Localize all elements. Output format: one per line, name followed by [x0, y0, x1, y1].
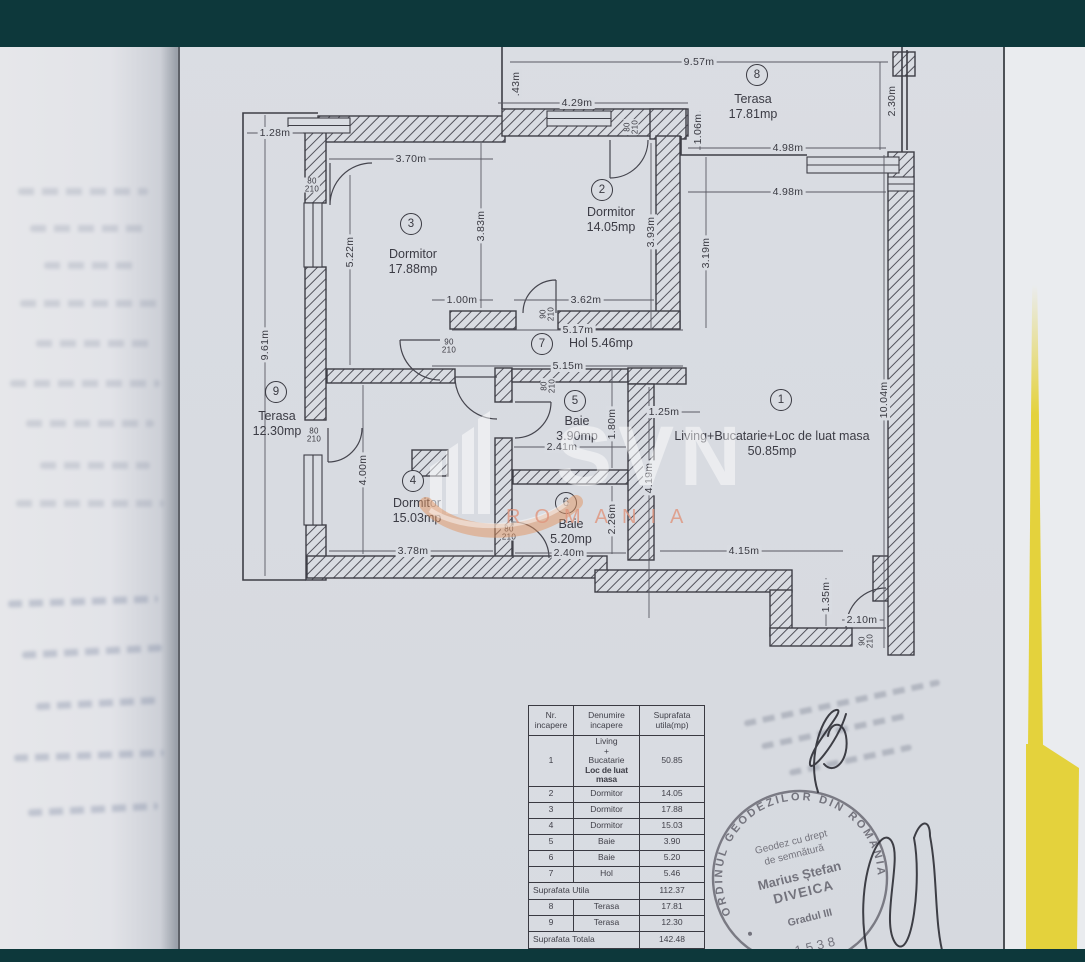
dimension-label: .43m	[510, 70, 522, 99]
name-line: Baie	[598, 837, 615, 847]
room-area: 12.30mp	[232, 424, 322, 439]
room-name: Terasa	[708, 92, 798, 107]
room-number-circle: 3	[400, 213, 422, 235]
stamp-grade: Gradul III	[786, 906, 833, 929]
dimension-label: 9.61m	[259, 328, 271, 363]
room-name: Baie	[542, 414, 612, 429]
room-name: Living+Bucatarie+Loc de luat masa	[647, 429, 897, 444]
room-area: 3.90mp	[542, 429, 612, 444]
cell-name: Dormitor	[573, 787, 639, 802]
cell-name: Terasa	[573, 900, 639, 915]
dimension-label: 3.19m	[700, 236, 712, 271]
cell-nr: 5	[529, 835, 573, 850]
room-area: 50.85mp	[647, 444, 897, 459]
dimension-label: 10.04m	[878, 380, 890, 421]
door-size-line: 210	[866, 634, 874, 648]
door-size-label: 80210	[541, 378, 556, 394]
cell-nr: 9	[529, 916, 573, 931]
dimension-label: 4.19m	[643, 461, 655, 496]
room-number-circle: 5	[564, 390, 586, 412]
area-table: Nr. incapereDenumire incapereSuprafata u…	[528, 705, 705, 959]
door-size-label: 80210	[624, 119, 639, 135]
table-row: 5Baie3.90	[529, 835, 704, 851]
cell-nr: 8	[529, 900, 573, 915]
cell-name: Dormitor	[573, 803, 639, 818]
dimension-label: 1.06m	[692, 112, 704, 147]
name-line: Dormitor	[590, 789, 623, 799]
table-header-row: Nr. incapereDenumire incapereSuprafata u…	[529, 706, 704, 736]
table-header-cell: Nr. incapere	[529, 706, 573, 735]
total-label: Suprafata Totala	[529, 932, 639, 948]
room-label: Hol 5.46mp	[546, 336, 656, 351]
dimension-label: 4.98m	[771, 186, 806, 198]
door-size-line: 210	[547, 307, 555, 321]
cell-nr: 2	[529, 787, 573, 802]
dimension-label: 9.57m	[682, 56, 717, 68]
cell-name: Dormitor	[573, 819, 639, 834]
table-total-row: Suprafata Totala142.48	[529, 932, 704, 949]
cell-name: Living+BucatarieLoc de luat masa	[573, 736, 639, 786]
name-line: Baie	[598, 853, 615, 863]
dimension-label: 2.10m	[845, 614, 880, 626]
dimension-label: 4.29m	[560, 97, 595, 109]
room-number-circle: 4	[402, 470, 424, 492]
room-label: Terasa17.81mp	[708, 92, 798, 121]
room-number-circle: 1	[770, 389, 792, 411]
dimension-label: 1.00m	[445, 294, 480, 306]
letterbox-bar-top	[0, 0, 1085, 47]
door-size-label: 90210	[441, 339, 457, 354]
room-number-circle: 6	[555, 492, 577, 514]
round-stamp: ORDINUL GEODEZILOR DIN ROMÂNIA Geodez cu…	[690, 768, 910, 962]
room-name: Dormitor	[367, 496, 467, 511]
cell-nr: 7	[529, 867, 573, 882]
dimension-label: 5.22m	[344, 235, 356, 270]
cell-name: Baie	[573, 835, 639, 850]
dimension-label: 4.98m	[771, 142, 806, 154]
dimension-label: 1.35m	[820, 580, 832, 615]
dimension-label: 3.83m	[475, 209, 487, 244]
room-label: Dormitor14.05mp	[566, 205, 656, 234]
room-name: Dormitor	[368, 247, 458, 262]
name-line: Terasa	[594, 918, 620, 928]
name-line: Dormitor	[590, 805, 623, 815]
table-row: 7Hol5.46	[529, 867, 704, 883]
name-line: Loc de luat masa	[576, 766, 637, 785]
table-header-cell: Denumire incapere	[573, 706, 639, 735]
room-label: Baie3.90mp	[542, 414, 612, 443]
table-row: 9Terasa12.30	[529, 916, 704, 932]
room-area: 15.03mp	[367, 511, 467, 526]
room-label: Living+Bucatarie+Loc de luat masa50.85mp	[647, 429, 897, 458]
table-row: 2Dormitor14.05	[529, 787, 704, 803]
name-line: Dormitor	[590, 821, 623, 831]
yellow-folder-edge	[1026, 744, 1079, 962]
dimension-label: 3.78m	[396, 545, 431, 557]
room-label: Baie5.20mp	[536, 517, 606, 546]
door-size-label: 80210	[501, 526, 517, 541]
room-name: Dormitor	[566, 205, 656, 220]
dimension-label: 4.00m	[357, 453, 369, 488]
dimension-label: 2.30m	[886, 84, 898, 119]
cell-nr: 3	[529, 803, 573, 818]
dimension-label: 2.40m	[552, 547, 587, 559]
door-size-line: 210	[631, 120, 639, 134]
door-size-label: 80210	[304, 178, 320, 193]
door-size-label: 90210	[540, 306, 555, 322]
cell-name: Terasa	[573, 916, 639, 931]
table-row: 3Dormitor17.88	[529, 803, 704, 819]
table-row: 8Terasa17.81	[529, 900, 704, 916]
door-size-line: 210	[502, 533, 516, 541]
dimension-label: 3.62m	[569, 294, 604, 306]
room-label: Dormitor17.88mp	[368, 247, 458, 276]
room-number-circle: 9	[265, 381, 287, 403]
dimension-label: 2.26m	[606, 502, 618, 537]
dimension-label: 1.28m	[258, 127, 293, 139]
room-name: Terasa	[232, 409, 322, 424]
dimension-label: 1.25m	[647, 406, 682, 418]
cell-name: Baie	[573, 851, 639, 866]
cell-name: Hol	[573, 867, 639, 882]
door-size-label: 90210	[859, 633, 874, 649]
table-header-cell: Suprafata utila(mp)	[639, 706, 704, 735]
room-area: 5.20mp	[536, 532, 606, 547]
table-row: 6Baie5.20	[529, 851, 704, 867]
door-size-line: 210	[305, 185, 319, 193]
name-line: Terasa	[594, 902, 620, 912]
dimension-label: 5.15m	[551, 360, 586, 372]
name-line: Hol	[600, 869, 613, 879]
dimension-label: 5.17m	[561, 324, 596, 336]
room-area: 17.81mp	[708, 107, 798, 122]
door-size-line: 210	[548, 379, 556, 393]
room-area: 14.05mp	[566, 220, 656, 235]
room-label: Dormitor15.03mp	[367, 496, 467, 525]
room-name: Baie	[536, 517, 606, 532]
table-row: 4Dormitor15.03	[529, 819, 704, 835]
door-size-line: 210	[442, 346, 456, 354]
table-row: 1Living+BucatarieLoc de luat masa50.85	[529, 736, 704, 787]
room-area: 17.88mp	[368, 262, 458, 277]
cell-nr: 6	[529, 851, 573, 866]
subtotal-label: Suprafata Utila	[529, 883, 639, 899]
table-subtotal-row: Suprafata Utila112.37	[529, 883, 704, 900]
dimension-label: 3.70m	[394, 153, 429, 165]
room-number-circle: 2	[591, 179, 613, 201]
scanned-floorplan-page: 9.57m.43m4.29m1.28m3.70m4.98m4.98m2.30m1…	[0, 0, 1085, 962]
room-number-circle: 8	[746, 64, 768, 86]
cell-nr: 1	[529, 736, 573, 786]
room-name: Hol 5.46mp	[546, 336, 656, 351]
dimension-label: 4.15m	[727, 545, 762, 557]
cell-nr: 4	[529, 819, 573, 834]
room-label: Terasa12.30mp	[232, 409, 322, 438]
letterbox-bar-bottom	[0, 949, 1085, 962]
